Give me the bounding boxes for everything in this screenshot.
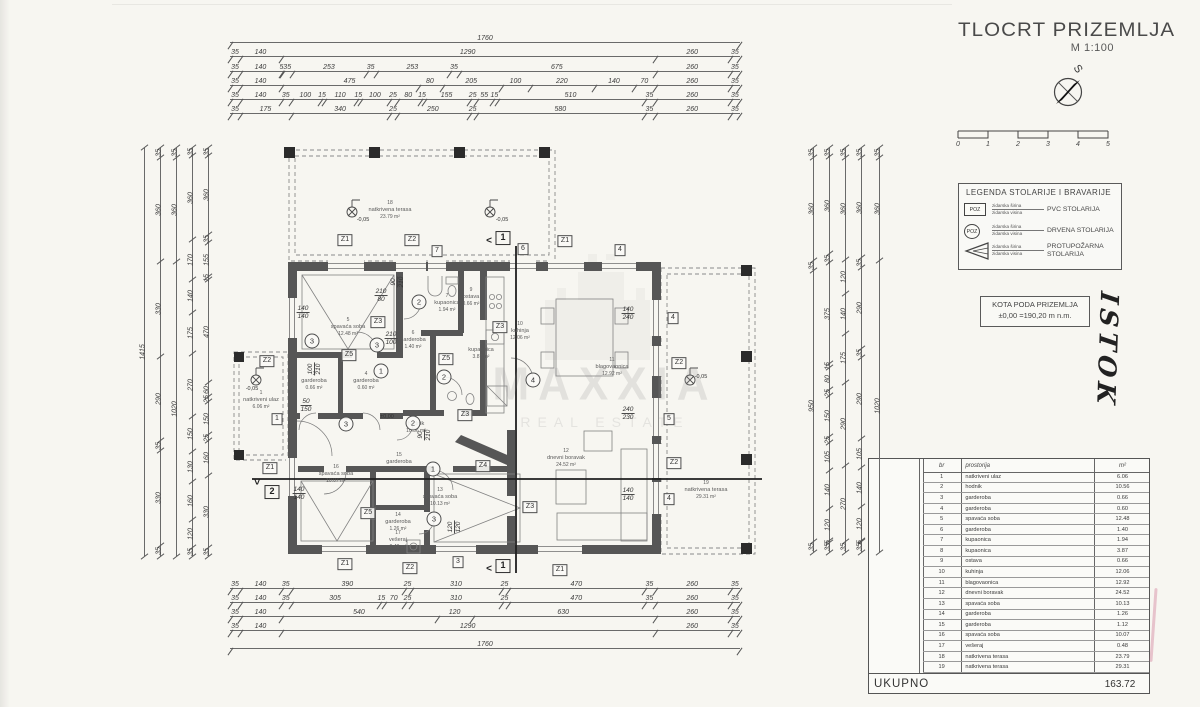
dim-value: 35 <box>731 106 739 113</box>
dim-segment: 310 <box>411 579 501 591</box>
dim-segment: 253 <box>376 62 449 74</box>
dim-value: 70 <box>640 78 648 85</box>
window-door-tag: 1 <box>272 413 283 425</box>
dim-segment: 35 <box>730 76 740 88</box>
dim-value: 290 <box>857 297 864 319</box>
dim-value: 170 <box>188 249 195 271</box>
legend-dim-height: zidarska visina <box>992 231 1044 237</box>
dim-value: 330 <box>204 501 211 523</box>
dim-segment: 35 <box>230 104 240 116</box>
handwritten-istok: ISTOK <box>1091 290 1124 411</box>
dim-segment: 340 <box>291 104 390 116</box>
dim-value: 475 <box>344 78 356 85</box>
cell-room: ostava <box>960 558 1096 564</box>
dim-segment: 160 <box>201 441 213 476</box>
dim-value: 175 <box>188 322 195 344</box>
dim-chain: 35140475802051002201407026035 <box>230 76 740 88</box>
room-label: 16spavaća soba10.07 m² <box>319 464 354 484</box>
dim-value: 35 <box>646 92 654 99</box>
dim-value: 100 <box>369 92 381 99</box>
door-position-tag: 3 <box>305 334 320 349</box>
table-row: 17vešeraj0.48 <box>923 641 1149 652</box>
window-door-tag: Z1 <box>557 235 572 247</box>
door-position-tag: 4 <box>526 373 541 388</box>
dim-value: 140 <box>857 477 864 499</box>
dim-chain: 35360351551547060251502516033035 <box>201 148 213 556</box>
cell-br: 5 <box>923 516 960 522</box>
cell-area: 1.40 <box>1096 527 1149 533</box>
dim-value: 340 <box>334 106 346 113</box>
dim-value: 130 <box>188 456 195 478</box>
dim-chain: 35140129026035 <box>230 47 740 59</box>
dim-value: 253 <box>406 64 418 71</box>
joinery-legend: LEGENDA STOLARIJE I BRAVARIJE POZ zidars… <box>958 183 1122 270</box>
room-name: kupaonica <box>434 299 460 306</box>
dim-segment: 160 <box>185 482 197 519</box>
col-header-br: br <box>923 463 960 469</box>
room-label: 10kuhinja12.06 m² <box>510 321 530 341</box>
dim-note-width: 90 <box>390 277 398 288</box>
room-label: 6garderoba1.40 m² <box>400 330 426 350</box>
cell-br: 10 <box>923 569 960 575</box>
dim-note-width: 140 <box>293 486 306 494</box>
dim-chain: 353603537515802515025105140120535 <box>822 148 834 552</box>
opening-dimension-note: 140240 <box>622 306 635 322</box>
dim-value: 675 <box>551 64 563 71</box>
cell-area: 3.87 <box>1096 548 1149 554</box>
dim-segment: 35 <box>644 104 654 116</box>
dim-value: 270 <box>188 374 195 396</box>
window-door-tag: 4 <box>615 244 626 256</box>
dim-value: 360 <box>172 199 179 221</box>
dim-segment: 175 <box>240 104 291 116</box>
room-area: 0.66 m² <box>301 385 327 392</box>
dim-segment: 250 <box>397 104 469 116</box>
dim-value: 55 <box>480 92 488 99</box>
cell-br: 12 <box>923 590 960 596</box>
dim-value: 105 <box>857 443 864 465</box>
dim-segment: 35 <box>854 542 866 552</box>
cell-area: 0.60 <box>1096 506 1149 512</box>
dim-value: 1290 <box>460 623 476 630</box>
dim-value: 160 <box>204 447 211 469</box>
table-row: 4garderoba0.60 <box>923 504 1149 515</box>
level-annotation: ±0,00 <box>380 414 394 420</box>
dim-segment: 35 <box>282 62 292 74</box>
dim-value: 140 <box>255 623 267 630</box>
dim-segment: 35 <box>230 90 240 102</box>
dim-value: 390 <box>342 581 354 588</box>
cell-br: 19 <box>923 664 960 670</box>
dim-value: 35 <box>367 64 375 71</box>
dim-segment: 140 <box>240 579 281 591</box>
dim-segment: 25 <box>404 579 411 591</box>
dim-segment: 470 <box>201 280 213 383</box>
room-area: 0.60 m² <box>353 385 379 392</box>
table-footer: UKUPNO 163.72 <box>869 673 1149 693</box>
dim-value: 35 <box>731 64 739 71</box>
cell-br: 13 <box>923 601 960 607</box>
dim-value: 35 <box>231 92 239 99</box>
door-position-tag: 2 <box>406 416 421 431</box>
dim-segment: 100 <box>360 90 389 102</box>
window-door-tag: Z1 <box>337 234 352 246</box>
room-label: 18natkrivena terasa23.79 m² <box>369 200 412 220</box>
dim-segment: 360 <box>169 158 181 262</box>
dim-segment: 140 <box>240 90 281 102</box>
cell-br: 15 <box>923 622 960 628</box>
cell-area: 0.66 <box>1096 558 1149 564</box>
table-row: 19natkrivena terasa29.31 <box>923 662 1149 673</box>
dim-segment: 390 <box>291 579 404 591</box>
dim-segment: 360 <box>201 156 213 235</box>
window-door-tag: 6 <box>518 243 529 255</box>
dim-segment: 270 <box>185 354 197 417</box>
opening-dimension-note: 140140 <box>297 305 310 321</box>
dim-note-width: 120 <box>447 521 455 534</box>
dim-segment: 35 <box>201 548 213 556</box>
dim-chain: 3536012014017529027035 <box>838 148 850 552</box>
cell-room: natkrivena terasa <box>960 654 1096 660</box>
dim-value: 150 <box>188 423 195 445</box>
dim-segment: 140 <box>822 471 834 509</box>
dim-segment: 35 <box>644 593 654 605</box>
room-area: 12.06 m² <box>510 335 530 342</box>
dim-value: 120 <box>449 609 461 616</box>
dim-value: 360 <box>809 198 816 220</box>
dim-value: 35 <box>231 609 239 616</box>
dim-value: 140 <box>608 78 620 85</box>
dim-value: 35 <box>731 581 739 588</box>
room-label: 1natkriveni ulaz6.06 m² <box>243 390 279 410</box>
dim-segment: 470 <box>508 593 644 605</box>
dim-segment: 140 <box>854 468 866 507</box>
dim-segment: 290 <box>153 357 165 441</box>
drawing-title: TLOCRT PRIZEMLJA <box>958 20 1175 42</box>
cell-area: 12.06 <box>1096 569 1149 575</box>
dim-chain: 351403539025310254703526035 <box>230 579 740 591</box>
dim-segment: 253 <box>292 62 365 74</box>
dim-value: 175 <box>260 106 272 113</box>
dim-value: 260 <box>686 623 698 630</box>
dim-segment: 220 <box>530 76 594 88</box>
dim-value: 290 <box>156 388 163 410</box>
room-area: 24.52 m² <box>547 462 585 469</box>
dim-segment: 140 <box>240 76 281 88</box>
room-area: 1.40 m² <box>400 344 426 351</box>
dim-value: 35 <box>283 64 291 71</box>
window-door-tag: Z2 <box>259 355 274 367</box>
dim-value: 35 <box>825 536 832 558</box>
opening-dimension-note: 140140 <box>622 487 635 503</box>
dim-value: 1760 <box>477 641 493 648</box>
dim-chain: 3514035100151101510025801515525551551035… <box>230 90 740 102</box>
cell-br: 4 <box>923 506 960 512</box>
dim-value: 140 <box>255 595 267 602</box>
dim-segment: 330 <box>153 262 165 357</box>
legend-desc-fire-1: PROTUPOŽARNA <box>1047 243 1104 251</box>
dim-value: 470 <box>570 595 582 602</box>
table-row: 14garderoba1.26 <box>923 610 1149 621</box>
dim-segment: 100 <box>291 90 320 102</box>
dim-segment: 120 <box>838 260 850 294</box>
dim-segment: 25 <box>389 104 396 116</box>
dim-segment: 155 <box>424 90 469 102</box>
dim-note-height: 150 <box>301 407 312 414</box>
cell-br: 1 <box>923 474 960 480</box>
cell-room: spavaća soba <box>960 632 1096 638</box>
table-row: 16spavaća soba10.07 <box>923 631 1149 642</box>
dim-value: 360 <box>156 199 163 221</box>
window-door-tag: Z1 <box>552 564 567 576</box>
cell-area: 10.56 <box>1096 484 1149 490</box>
room-area: 12.48 m² <box>331 331 366 338</box>
cell-area: 12.92 <box>1096 580 1149 586</box>
scalebar-tick: 0 <box>956 141 960 148</box>
dim-value: 35 <box>731 623 739 630</box>
cell-area: 6.06 <box>1096 474 1149 480</box>
dim-value: 35 <box>282 581 290 588</box>
table-row: 15garderoba1.12 <box>923 620 1149 631</box>
dim-segment: 35 <box>281 90 291 102</box>
room-area: 1.94 m² <box>434 307 460 314</box>
cell-br: 7 <box>923 537 960 543</box>
dim-segment: 35 <box>230 579 240 591</box>
table-row: 12dnevni boravak24.52 <box>923 588 1149 599</box>
section-marker: 2 <box>264 485 279 499</box>
cell-room: garderoba <box>960 527 1096 533</box>
dim-segment: 35 <box>185 548 197 556</box>
level-annotation: -0,05 <box>496 217 509 223</box>
dim-value: 260 <box>686 92 698 99</box>
dim-segment: 35 <box>449 62 459 74</box>
dim-segment: 140 <box>240 593 281 605</box>
dim-segment: 170 <box>185 240 197 280</box>
dim-note-height: 230 <box>622 415 635 422</box>
dim-segment: 25 <box>389 90 396 102</box>
cell-room: kupaonica <box>960 537 1096 543</box>
dim-value: 540 <box>353 609 365 616</box>
dim-segment: 120 <box>437 607 472 619</box>
section-arrow-icon: < <box>486 564 492 575</box>
dim-value: 260 <box>686 609 698 616</box>
cell-br: 11 <box>923 580 960 586</box>
table-header: br prostorija m² <box>923 459 1149 473</box>
level-annotation: -0,05 <box>246 386 259 392</box>
dim-chain: 353603595035 <box>806 148 818 552</box>
dim-chain: 3517534025250255803526035 <box>230 104 740 116</box>
dim-segment: 70 <box>634 76 654 88</box>
dim-segment: 25 <box>469 90 476 102</box>
window-door-tag: Z2 <box>404 234 419 246</box>
dim-segment: 1415 <box>137 148 149 556</box>
poz-rect-tag: POZ <box>964 203 986 216</box>
dim-value: 260 <box>686 78 698 85</box>
dim-value: 35 <box>450 64 458 71</box>
dim-value: 35 <box>231 106 239 113</box>
cell-room: garderoba <box>960 622 1096 628</box>
dim-segment: 35 <box>730 607 740 619</box>
window-door-tag: Z4 <box>475 460 490 472</box>
dim-value: 35 <box>231 64 239 71</box>
room-name: vešeraj <box>389 536 407 543</box>
dim-segment: 35 <box>730 62 740 74</box>
dim-segment: 290 <box>854 358 866 439</box>
cell-br: 18 <box>923 654 960 660</box>
dim-segment: 1760 <box>230 33 740 45</box>
dim-value: 375 <box>825 303 832 325</box>
dim-value: 330 <box>156 298 163 320</box>
door-position-tag: 1 <box>374 364 389 379</box>
legend-dim-width: zidarska širina <box>992 224 1044 231</box>
room-label: 13spavaća soba10.13 m² <box>423 487 458 507</box>
room-label: 9ostava0.66 m² <box>463 287 480 307</box>
dim-segment: 260 <box>655 62 730 74</box>
scalebar-tick: 5 <box>1106 141 1110 148</box>
cell-room: blagovaonica <box>960 580 1096 586</box>
dim-value: 35 <box>282 92 290 99</box>
scalebar-tick: 1 <box>986 141 990 148</box>
dim-value: 35 <box>731 92 739 99</box>
cell-area: 0.48 <box>1096 643 1149 649</box>
dim-segment: 140 <box>240 607 281 619</box>
opening-dimension-note: 100210 <box>307 363 323 376</box>
dim-value: 253 <box>323 64 335 71</box>
dim-value: 35 <box>231 78 239 85</box>
dim-value: 35 <box>731 49 739 56</box>
cell-room: garderoba <box>960 611 1096 617</box>
dim-segment: 150 <box>185 417 197 452</box>
dim-segment: 25 <box>501 593 508 605</box>
fireproof-symbol-icon <box>963 242 989 258</box>
dim-value: 140 <box>255 92 267 99</box>
dim-segment: 35 <box>838 542 850 552</box>
dim-chain: 1760 <box>230 639 740 651</box>
room-name: natkriveni ulaz <box>243 396 279 403</box>
dim-segment: 470 <box>508 579 644 591</box>
dim-value: 35 <box>231 49 239 56</box>
section-arrow-icon: < <box>486 236 492 247</box>
room-area: 1.12 m² <box>386 466 412 473</box>
cell-area: 29.31 <box>1096 664 1149 670</box>
cell-room: vešeraj <box>960 643 1096 649</box>
dim-value: 80 <box>404 92 412 99</box>
total-value: 163.72 <box>1091 679 1149 690</box>
dim-segment: 80 <box>418 76 441 88</box>
dim-segment: 35 <box>730 104 740 116</box>
window-door-tag: Z2 <box>671 357 686 369</box>
dim-note-width: 140 <box>297 305 310 313</box>
dim-segment: 110 <box>324 90 356 102</box>
dim-note-height: 120 <box>456 521 463 534</box>
dim-value: 360 <box>841 198 848 220</box>
cell-area: 0.66 <box>1096 495 1149 501</box>
door-position-tag: 2 <box>412 295 427 310</box>
cell-br: 2 <box>923 484 960 490</box>
room-label: 12dnevni boravak24.52 m² <box>547 448 585 468</box>
cell-area: 12.48 <box>1096 516 1149 522</box>
legend-dim-height: zidarska visina <box>992 251 1044 257</box>
dim-chain: 353603302903533035 <box>153 148 165 556</box>
dim-segment: 360 <box>838 158 850 260</box>
dim-segment: 100 <box>501 76 530 88</box>
room-name: kupaonica <box>468 346 494 353</box>
dim-note-width: 100 <box>307 363 315 376</box>
dim-value: 35 <box>231 581 239 588</box>
door-position-tag: 3 <box>370 338 385 353</box>
dim-segment: 1290 <box>281 621 655 633</box>
dim-segment: 35 <box>230 607 240 619</box>
dim-segment: 360 <box>185 156 197 240</box>
dim-segment: 360 <box>806 158 818 261</box>
window-door-tag: Z1 <box>337 558 352 570</box>
opening-dimension-note: 21080 <box>375 288 388 304</box>
dim-value: 35 <box>231 595 239 602</box>
room-label: 17vešeraj0.48 m² <box>389 530 407 550</box>
dim-note-height: 140 <box>293 495 306 502</box>
dim-note-height: 140 <box>297 314 310 321</box>
dim-chain: 35140129026035 <box>230 621 740 633</box>
dim-segment: 35 <box>806 542 818 552</box>
dim-segment: 35 <box>230 621 240 633</box>
dim-segment: 35 <box>730 90 740 102</box>
dim-chain: 1760 <box>230 33 740 45</box>
dim-note-width: 90 <box>417 430 425 441</box>
dim-value: 305 <box>329 595 341 602</box>
cell-room: garderoba <box>960 506 1096 512</box>
cell-room: natkriveni ulaz <box>960 474 1096 480</box>
room-area: 0.48 m² <box>389 544 407 551</box>
room-name: garderoba <box>400 336 426 343</box>
dim-value: 1760 <box>477 35 493 42</box>
table-row: 8kupaonica3.87 <box>923 546 1149 557</box>
dim-segment: 1020 <box>872 261 884 552</box>
cell-br: 16 <box>923 632 960 638</box>
dim-chain: 353601020 <box>169 148 181 556</box>
dim-segment: 290 <box>838 383 850 465</box>
dim-value: 110 <box>335 92 346 99</box>
dim-note-width: 140 <box>622 306 635 314</box>
dim-value: 205 <box>465 78 477 85</box>
dim-value: 35 <box>809 536 816 558</box>
dim-value: 290 <box>841 413 848 435</box>
room-area: 6.06 m² <box>243 404 279 411</box>
cell-area: 24.52 <box>1096 590 1149 596</box>
room-name: blagovaonica <box>596 363 629 370</box>
dim-segment: 260 <box>655 607 730 619</box>
dim-note-height: 210 <box>316 363 323 376</box>
dim-value: 140 <box>825 479 832 501</box>
room-label: 8kupaonica3.87 m² <box>468 340 494 360</box>
dim-value: 80 <box>426 78 434 85</box>
dim-value: 360 <box>825 195 832 217</box>
dim-note-height: 140 <box>622 496 635 503</box>
dim-segment: 260 <box>655 579 730 591</box>
dim-value: 35 <box>646 581 654 588</box>
cell-room: hodnik <box>960 484 1096 490</box>
dim-segment: 375 <box>822 263 834 364</box>
dim-segment: 1760 <box>230 639 740 651</box>
section-marker: 1 <box>495 231 510 245</box>
scan-edge-shadow <box>0 0 10 707</box>
window-door-tag: 4 <box>668 312 679 324</box>
scanned-floorplan-page: TLOCRT PRIZEMLJA M 1:100 S 012345 LEGEND… <box>0 0 1200 707</box>
window-door-tag: Z3 <box>370 316 385 328</box>
window-door-tag: Z3 <box>457 409 472 421</box>
room-name: kuhinja <box>510 327 530 334</box>
dim-segment: 360 <box>153 158 165 262</box>
dim-value: 260 <box>686 49 698 56</box>
